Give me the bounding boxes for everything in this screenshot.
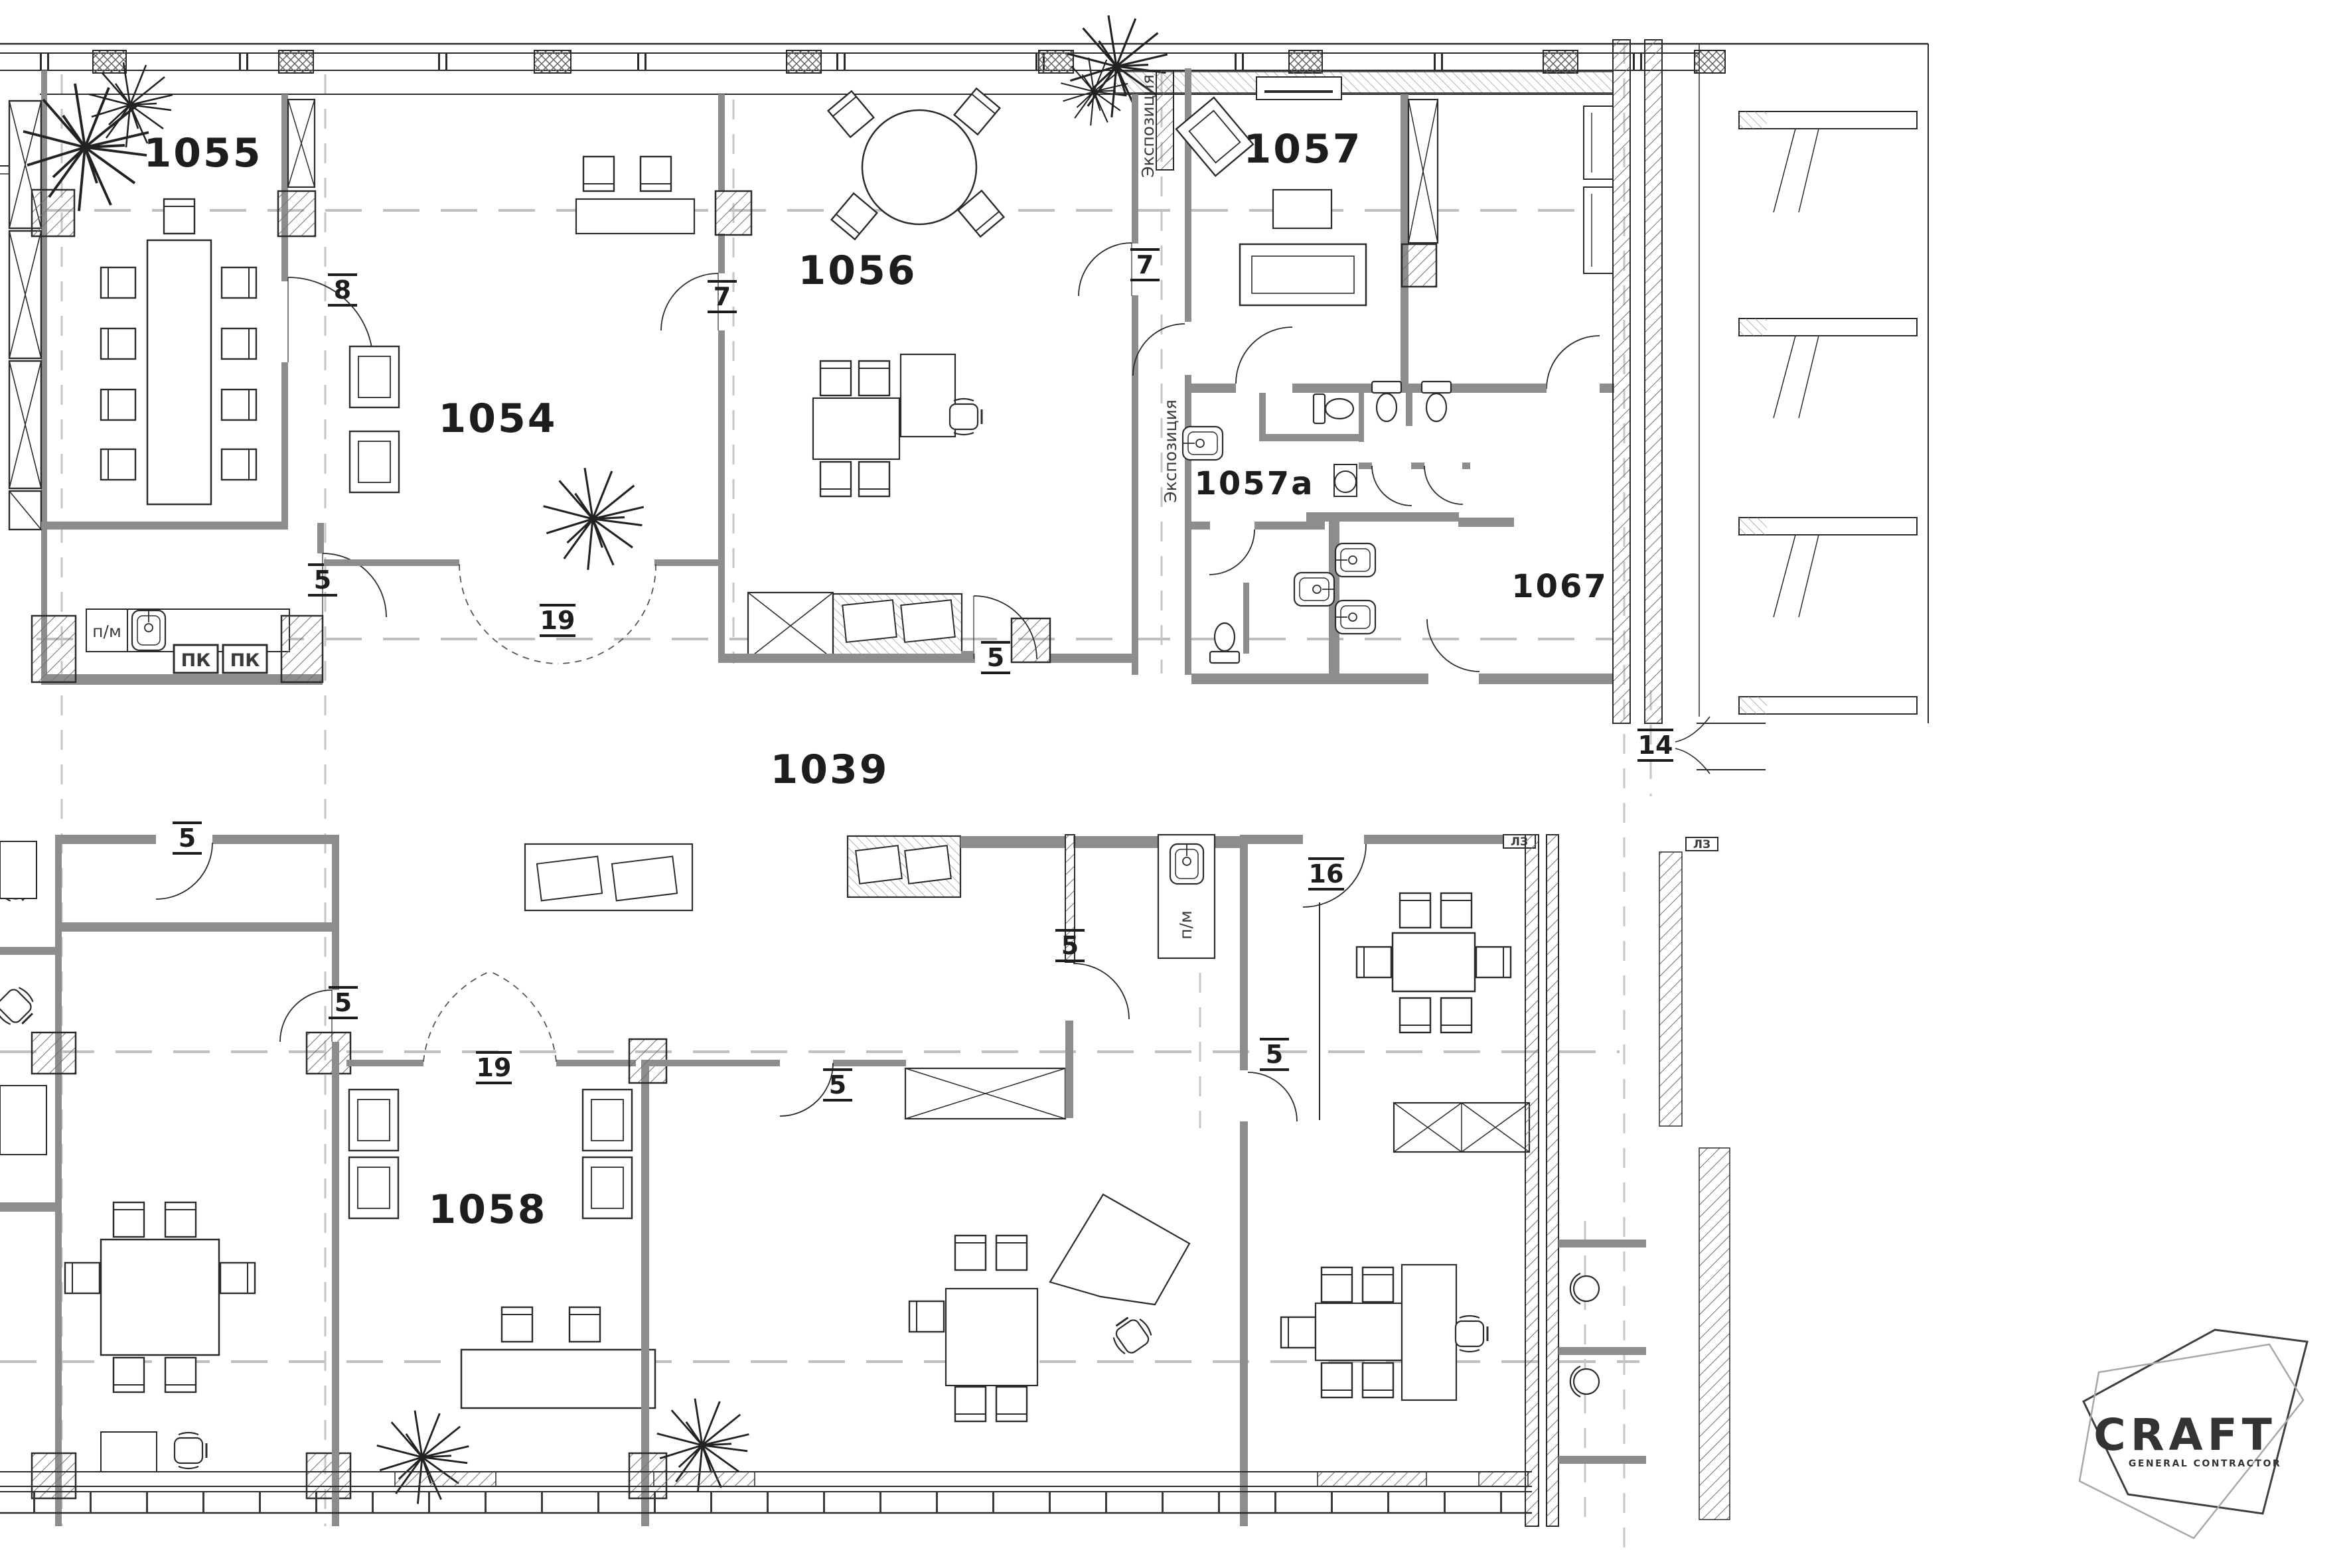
exposition-label: Экспозиция <box>1138 74 1158 178</box>
svg-text:5: 5 <box>829 1070 846 1100</box>
exterior-wall-top <box>0 44 1928 94</box>
toilet-icon <box>1422 382 1451 421</box>
pk-label: ПК <box>230 650 260 671</box>
door-tag-5: 5 <box>329 987 358 1018</box>
reception-desk <box>576 157 694 234</box>
door-tag-5: 5 <box>308 565 337 595</box>
exposition-label: Экспозиция <box>1161 399 1180 503</box>
pedestal-sink <box>1334 464 1357 496</box>
svg-text:5: 5 <box>335 988 352 1017</box>
room-1056: 7 5 1056 <box>661 15 1168 673</box>
room-label-1056: 1056 <box>798 248 917 294</box>
svg-text:16: 16 <box>1309 859 1344 889</box>
coffee-table <box>1273 190 1331 228</box>
svg-text:5: 5 <box>314 565 331 595</box>
sink-icon <box>132 610 165 650</box>
x-closet <box>1394 1103 1529 1152</box>
room-label-1067: 1067 <box>1511 568 1608 605</box>
right-upper-room <box>1547 106 1613 389</box>
sink-icon <box>1294 573 1334 606</box>
door-tag-5: 5 <box>1055 930 1085 961</box>
stair-flights <box>1739 111 1917 714</box>
logo-subtitle: GENERAL CONTRACTOR <box>2129 1459 2281 1469</box>
room-label-1058: 1058 <box>429 1186 548 1233</box>
door-tag-7: 7 <box>708 281 737 312</box>
floor-plan-drawing: 1055 8 п/м ПК ПК 5 1054 19 <box>0 0 2351 1568</box>
plant-icon <box>377 1411 469 1504</box>
room-label-1054: 1054 <box>439 395 558 442</box>
sink-icon <box>1335 601 1375 634</box>
svg-text:5: 5 <box>1061 931 1079 960</box>
room-label-1039: 1039 <box>771 747 889 793</box>
door-tag-19: 19 <box>540 605 575 636</box>
room-label-1057: 1057 <box>1244 126 1363 173</box>
pk-label: ПК <box>181 650 211 671</box>
pm-label: п/м <box>1176 910 1195 940</box>
svg-text:19: 19 <box>540 606 575 635</box>
toilet-icon <box>1314 394 1353 423</box>
armchair-icon <box>349 1090 398 1151</box>
svg-text:7: 7 <box>714 282 731 311</box>
room-1057: 1057 <box>1176 77 1438 389</box>
armchair-icon <box>583 1090 632 1151</box>
meeting-table <box>65 1202 255 1392</box>
armchair-icon <box>350 431 399 492</box>
door-tag-14: 14 <box>1637 730 1673 760</box>
tv-console <box>525 844 692 910</box>
lower-right-room <box>1281 1265 1487 1400</box>
svg-text:5: 5 <box>987 643 1004 672</box>
door-tag-19: 19 <box>476 1052 512 1083</box>
long-table <box>461 1307 655 1408</box>
craft-logo: CRAFT GENERAL CONTRACTOR <box>2080 1330 2307 1538</box>
svg-text:8: 8 <box>334 275 351 305</box>
wardrobe-row <box>748 593 973 662</box>
chair-icon <box>1570 1366 1599 1397</box>
armchair-icon <box>583 1157 632 1218</box>
door-tag-16: 16 <box>1308 859 1344 889</box>
svg-text:19: 19 <box>477 1053 512 1082</box>
armchair-icon <box>350 346 399 407</box>
toilet-icon <box>1372 382 1401 421</box>
corridor-1039: 1039 14 <box>771 717 1766 793</box>
svg-text:14: 14 <box>1638 731 1673 760</box>
desk-cluster <box>909 1194 1189 1421</box>
room-1054: 1054 19 <box>324 157 720 664</box>
shaft-x-boxes <box>9 101 41 530</box>
x-closet <box>905 1068 1065 1119</box>
meeting-room-16: ЛЗ 16 <box>1248 835 1535 1152</box>
toilet-icon <box>1210 623 1239 663</box>
lower-left-block: 5 5 <box>0 823 358 1526</box>
lz-label: ЛЗ <box>1693 838 1710 851</box>
desk-cluster <box>813 354 982 496</box>
door-tag-5: 5 <box>981 642 1010 673</box>
task-chair-icon <box>175 1433 206 1468</box>
sink-icon <box>1335 543 1375 577</box>
room-1058: 19 1058 <box>346 971 666 1526</box>
task-chair-icon <box>0 983 40 1031</box>
sink-icon <box>1183 427 1223 460</box>
exposition-strip: 7 Экспозиция Экспозиция <box>1079 68 1191 675</box>
exterior-wall-bottom <box>0 1472 1532 1513</box>
plant-icon <box>544 468 644 570</box>
meeting-table <box>1357 893 1511 1033</box>
console-shelf <box>1256 77 1341 100</box>
right-lower-strip: ЛЗ <box>1525 835 1730 1526</box>
round-table-group <box>828 88 1004 239</box>
svg-text:5: 5 <box>1266 1040 1283 1069</box>
wc-block: 1057a 1067 <box>1183 327 1614 684</box>
chair-icon <box>1570 1273 1599 1304</box>
corridor-consoles: п/м <box>525 835 1248 962</box>
conference-table <box>101 199 256 504</box>
svg-text:5: 5 <box>179 823 196 853</box>
sofa <box>1240 244 1366 305</box>
room-1055: 1055 8 <box>23 62 373 530</box>
desk-cluster <box>1281 1265 1487 1400</box>
door-tag-5: 5 <box>1260 1039 1289 1070</box>
room-label-1057a: 1057a <box>1195 465 1315 502</box>
sink-column: п/м <box>1158 835 1215 958</box>
door-tag-5: 5 <box>173 823 202 853</box>
svg-text:7: 7 <box>1136 250 1154 279</box>
room-label-1055: 1055 <box>144 130 263 177</box>
door-tag-5: 5 <box>823 1070 852 1100</box>
right-structure-strip <box>1613 40 1928 723</box>
pm-label: п/м <box>92 622 121 641</box>
tv-console <box>848 836 960 897</box>
door-tag-7: 7 <box>1130 249 1160 280</box>
logo-title: CRAFT <box>2093 1409 2276 1461</box>
armchair-icon <box>349 1157 398 1218</box>
service-room-pm: п/м ПК ПК 5 <box>32 523 386 685</box>
